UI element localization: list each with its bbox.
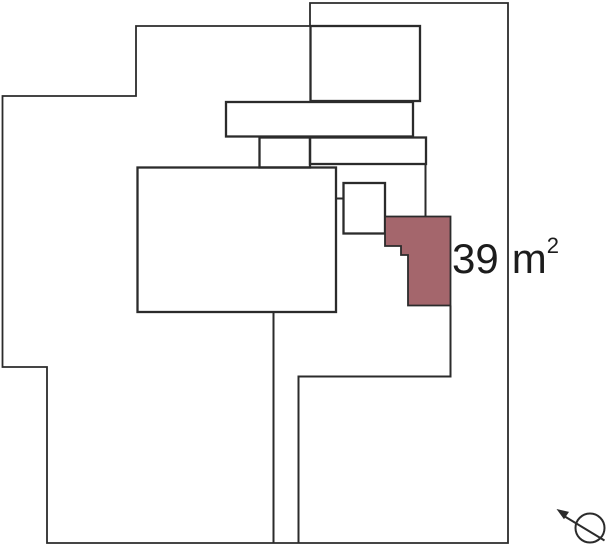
room-small-square [344,183,386,234]
area-value: 39 [452,235,499,282]
compass-needle [564,516,605,541]
site-plan-canvas: 39m2 [0,0,608,547]
highlighted-unit[interactable] [385,217,451,306]
building-block-top [311,26,421,101]
building-cell [260,138,311,168]
building-bar-lower [310,138,426,165]
building-footprint-boundary [299,306,451,544]
area-superscript: 2 [547,233,559,258]
building-bar-upper [226,102,413,137]
north-arrow-icon [557,509,605,543]
area-unit: m [512,235,547,282]
room-large-left [138,168,337,313]
area-label: 39m2 [452,238,559,280]
